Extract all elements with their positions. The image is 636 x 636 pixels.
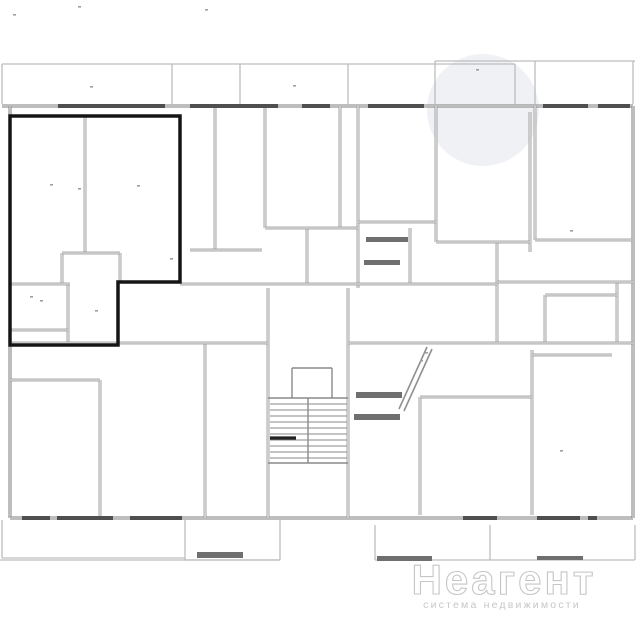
watermark-circle <box>427 54 539 166</box>
diagonal-walls <box>399 347 432 411</box>
floorplan-image[interactable]: Неагент система недвижимости <box>0 0 636 636</box>
staircase <box>268 368 348 463</box>
watermark-tagline: система недвижимости <box>423 599 581 611</box>
exterior-walls <box>2 106 633 518</box>
interior-walls <box>10 106 633 518</box>
furniture-marks <box>197 237 583 561</box>
window-marks <box>22 106 630 518</box>
watermark-brand: Неагент <box>412 556 597 603</box>
floorplan-canvas: Неагент система недвижимости <box>0 0 636 636</box>
